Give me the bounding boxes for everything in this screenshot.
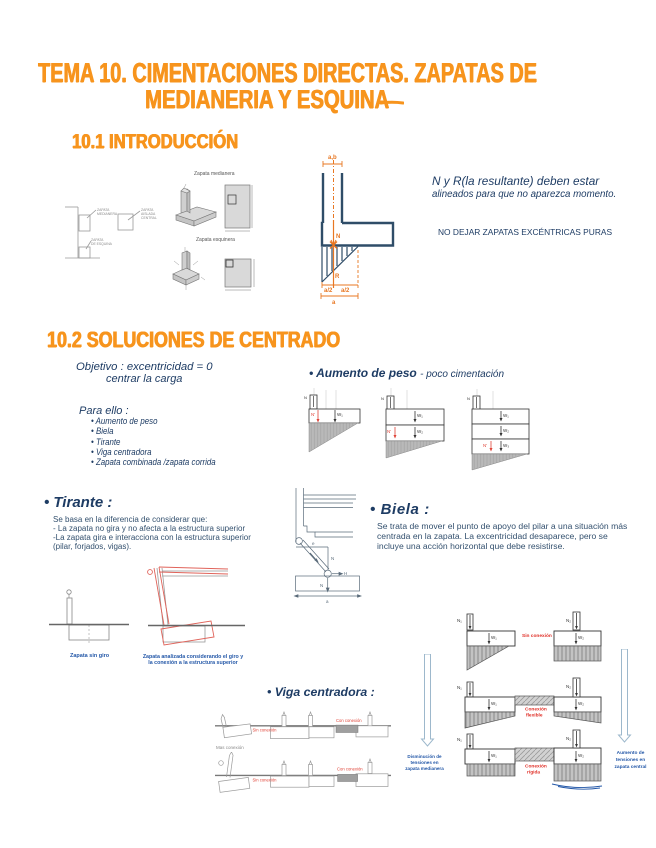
svg-text:N₂: N₂ [566,618,571,623]
svg-text:W₂: W₂ [578,701,584,706]
svg-text:N': N' [311,412,315,417]
svg-text:Conexión: Conexión [525,707,547,713]
svg-text:a/2: a/2 [324,288,333,294]
svg-text:MEDIANERA: MEDIANERA [97,212,118,216]
svg-text:W₁: W₁ [503,413,509,418]
svg-text:W₁: W₁ [337,412,343,417]
svg-text:N₂: N₂ [566,736,571,741]
svg-text:a: a [332,300,336,306]
svg-text:a: a [326,599,329,604]
svg-text:R: R [335,274,340,280]
svg-text:N: N [381,396,384,401]
svg-text:N: N [304,395,307,400]
svg-text:Con conexión: Con conexión [336,718,362,723]
svg-text:N: N [467,396,470,401]
svg-text:W₂: W₂ [417,429,423,434]
svg-text:a/2: a/2 [341,288,350,294]
svg-text:W₁: W₁ [417,413,423,418]
svg-text:N: N [320,583,323,588]
svg-text:W₂: W₂ [503,428,509,433]
svg-text:H: H [344,571,347,576]
svg-text:N₂: N₂ [566,684,571,689]
svg-text:W₂: W₂ [578,753,584,758]
svg-text:a,b: a,b [328,155,337,161]
svg-text:N₁: N₁ [457,618,462,623]
svg-text:rígida: rígida [527,770,540,776]
svg-text:Con conexión: Con conexión [337,766,363,771]
svg-text:Sin conexión: Sin conexión [522,633,552,639]
svg-text:DE ESQUINA: DE ESQUINA [91,242,113,246]
svg-text:W₁: W₁ [491,753,497,758]
svg-text:N: N [331,556,334,561]
svg-text:N': N' [483,443,487,448]
svg-text:W₁: W₁ [491,701,497,706]
svg-text:e: e [312,541,315,546]
svg-text:Sin conexión: Sin conexión [253,728,278,733]
svg-text:W₂: W₂ [578,635,584,640]
svg-text:N: N [336,234,340,240]
svg-text:Sin conexión: Sin conexión [253,778,278,783]
svg-text:W₃: W₃ [503,443,509,448]
svg-text:flexible: flexible [526,713,543,719]
svg-text:W₁: W₁ [491,635,497,640]
svg-text:CENTRAL: CENTRAL [141,216,157,220]
svg-text:N₁: N₁ [457,737,462,742]
svg-text:N₁: N₁ [457,685,462,690]
svg-text:Conexión: Conexión [525,764,547,770]
svg-text:N': N' [387,429,391,434]
